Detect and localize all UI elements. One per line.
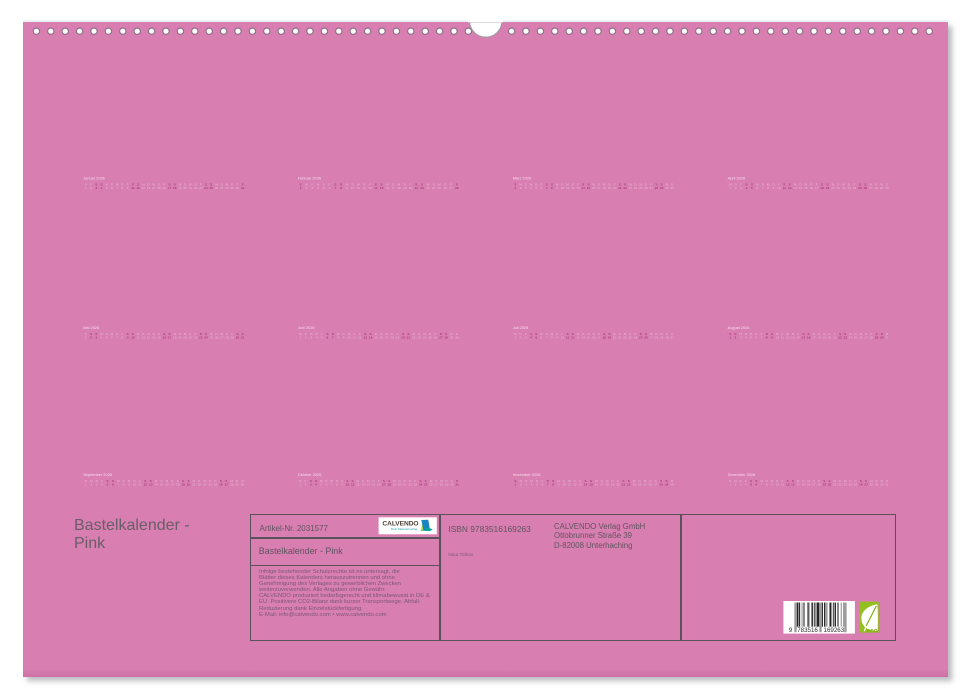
svg-text:Juli 2026: Juli 2026 (513, 325, 529, 330)
svg-text:123456789101112131415161718192: 1234567891011121314151617181920212223242… (85, 336, 245, 340)
svg-text:April 2026: April 2026 (728, 175, 746, 180)
svg-text:November 2026: November 2026 (513, 472, 541, 477)
svg-text:März 2026: März 2026 (513, 175, 531, 180)
svg-text:Januar 2026: Januar 2026 (83, 175, 105, 180)
svg-text:123456789101112131415161718192: 1234567891011121314151617181920212223242… (299, 483, 459, 487)
svg-text:Juni 2026: Juni 2026 (298, 325, 315, 330)
svg-text:123456789101112131415161718192: 1234567891011121314151617181920212223242… (729, 483, 889, 487)
svg-text:123456789101112131415161718192: 1234567891011121314151617181920212223242… (300, 336, 459, 340)
svg-text:123456789101112131415161718192: 1234567891011121314151617181920212223242… (729, 336, 889, 340)
svg-text:Oktober 2026: Oktober 2026 (298, 472, 322, 477)
svg-text:Dezember 2026: Dezember 2026 (728, 472, 756, 477)
svg-text:Februar 2026: Februar 2026 (298, 175, 321, 180)
svg-text:123456789101112131415161718192: 1234567891011121314151617181920212223242… (514, 336, 674, 340)
svg-text:September 2026: September 2026 (83, 472, 112, 477)
svg-text:123456789101112131415161718192: 1234567891011121314151617181920212223242… (515, 483, 674, 487)
svg-text:123456789101112131415161718192: 1234567891011121314151617181920212223242… (85, 186, 245, 190)
svg-text:August 2026: August 2026 (728, 325, 750, 330)
svg-text:123456789101112131415161718192: 1234567891011121314151617181920212223242… (85, 483, 244, 487)
svg-text:123456789101112131415161718192: 1234567891011121314151617181920212223242… (514, 186, 674, 190)
svg-text:Mai 2026: Mai 2026 (83, 325, 99, 330)
svg-text:123456789101112131415161718192: 1234567891011121314151617181920212223242… (300, 186, 459, 190)
svg-text:123456789101112131415161718192: 1234567891011121314151617181920212223242… (729, 186, 888, 190)
